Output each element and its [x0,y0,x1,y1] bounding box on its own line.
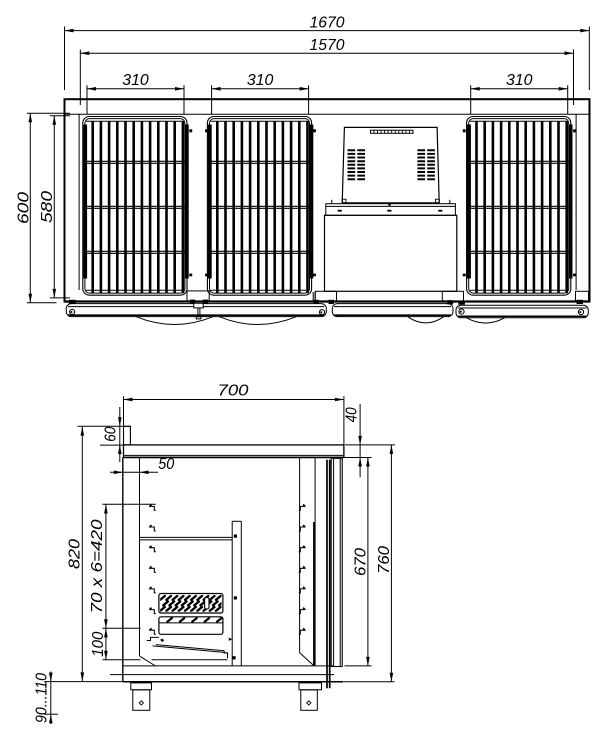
svg-text:760: 760 [376,546,393,574]
svg-text:60: 60 [102,427,119,442]
svg-text:310: 310 [247,72,274,89]
svg-text:700: 700 [218,383,249,400]
svg-text:40: 40 [344,407,361,422]
svg-text:670: 670 [352,548,369,576]
svg-text:90...110: 90...110 [33,673,50,723]
svg-text:50: 50 [158,456,174,473]
svg-text:820: 820 [66,539,83,569]
svg-text:70 х 6=420: 70 х 6=420 [89,519,106,613]
svg-text:310: 310 [122,72,149,89]
svg-text:100: 100 [90,632,107,657]
svg-text:600: 600 [15,192,32,224]
svg-text:1570: 1570 [310,37,345,54]
svg-text:310: 310 [506,72,533,89]
svg-text:580: 580 [39,191,56,223]
svg-text:1670: 1670 [310,14,345,31]
